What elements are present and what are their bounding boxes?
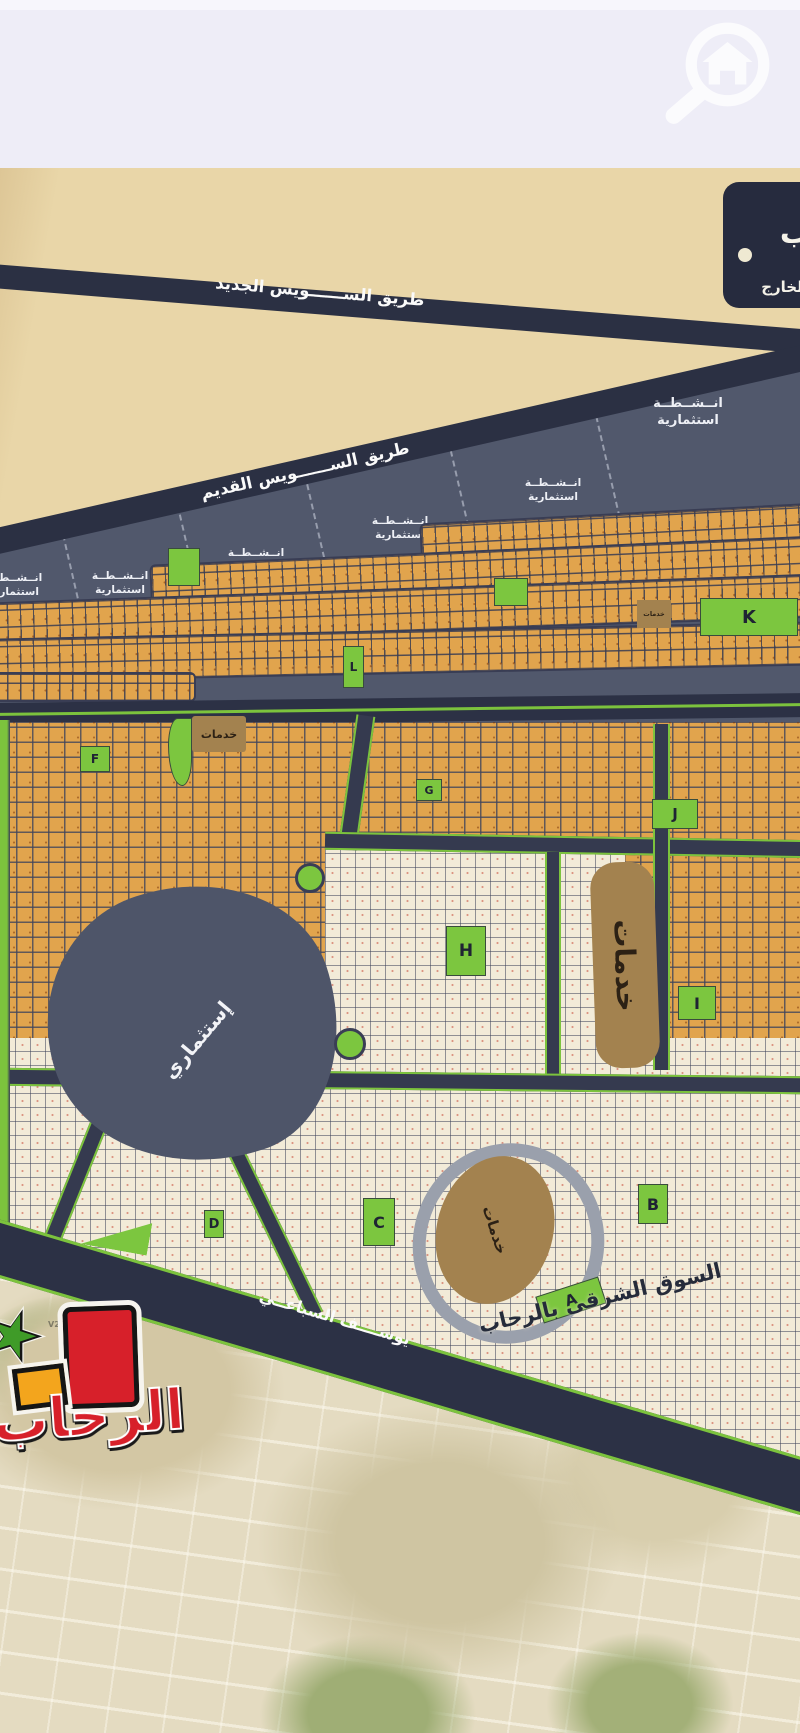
plot-strip (0, 672, 196, 702)
services-label: خدمات (607, 918, 643, 1011)
new-suez-road (0, 263, 800, 356)
district-badge-c: C (363, 1198, 395, 1246)
district-badge-j: J (652, 799, 698, 829)
investment-activities-label: انــشــطــةاستثمارية (633, 396, 743, 430)
district-badge-i: I (678, 986, 716, 1020)
green-roadside-strip (0, 720, 10, 1230)
district-badge-f: F (80, 746, 110, 772)
services-block: خدمات (192, 716, 246, 752)
services-block-vertical: خدمات (589, 861, 660, 1069)
screenshot: طريق الســــــويس الجديد طريق الســــــو… (0, 0, 800, 1733)
park (168, 548, 200, 586)
search-home-icon[interactable] (655, 12, 780, 137)
roundabout (295, 863, 325, 893)
investment-activities-label: انــشــطــةاستثمارية (508, 477, 598, 504)
services-label: خدمات (201, 728, 237, 741)
district-badge-k: K (700, 598, 798, 636)
investment-activities-label: انــشــطــةاستثمارية (0, 572, 59, 599)
services-label: خدمات (479, 1204, 511, 1257)
district-badge-l: L (343, 646, 364, 688)
legend-title-partial: ب (780, 216, 800, 251)
road (545, 852, 561, 1075)
legend-box: ب بالخارج (723, 182, 800, 308)
logo-script: الرحاب (0, 1377, 187, 1455)
district-badge-d: D (204, 1210, 224, 1238)
rehab-logo: الرحاب (0, 1298, 180, 1548)
roundabout (334, 1028, 366, 1060)
status-bar (0, 0, 800, 10)
district-badge-h: H (446, 926, 486, 976)
park (494, 578, 528, 606)
district-badge-g: G (416, 779, 442, 801)
services-block-small: خدمات (637, 600, 671, 628)
map-canvas[interactable]: طريق الســــــويس الجديد طريق الســــــو… (0, 168, 800, 1733)
app-header (0, 0, 800, 168)
legend-bullet (738, 248, 752, 262)
district-badge-b: B (638, 1184, 668, 1224)
legend-subtitle: بالخارج (761, 278, 800, 296)
